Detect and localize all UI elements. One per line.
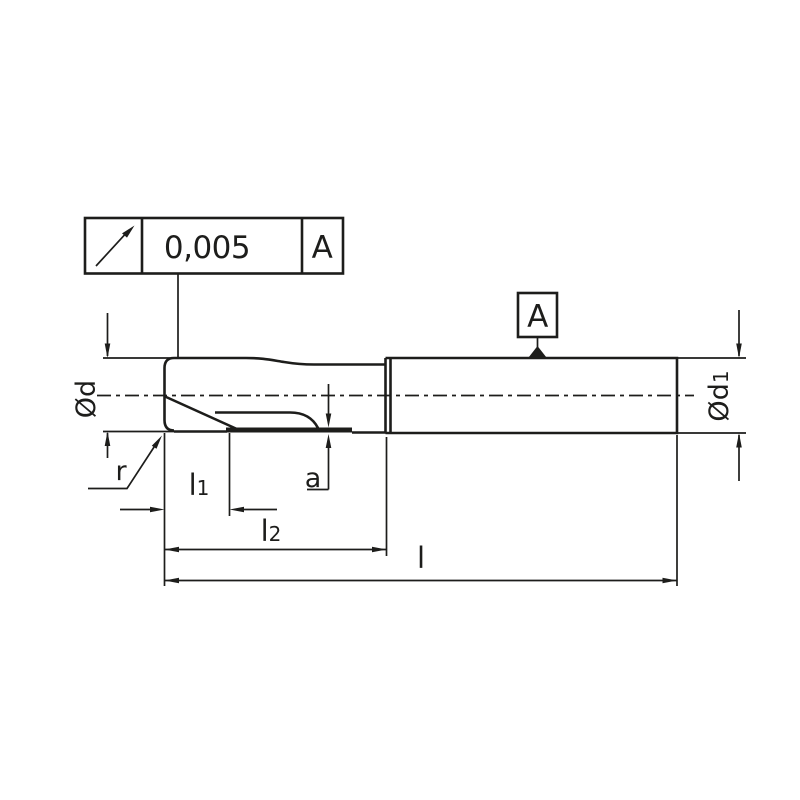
label-radius: r <box>115 456 127 487</box>
arrowhead-left <box>230 507 245 513</box>
label-l2: l2 <box>261 514 282 548</box>
label-l: l <box>417 541 425 575</box>
arrowhead-up <box>105 432 111 447</box>
arrowhead-down <box>736 344 742 359</box>
arrowhead-right <box>150 507 165 513</box>
datum-flag: A <box>518 293 557 358</box>
arrowhead-down <box>326 414 332 428</box>
dim-l1: l1 <box>120 433 277 586</box>
tolerance-value: 0,005 <box>164 230 250 266</box>
arrowhead-up <box>326 434 332 448</box>
arrowhead-down <box>105 344 111 359</box>
arrowhead-left <box>165 578 180 584</box>
datum-label: A <box>527 299 548 335</box>
label-diameter-shank: Ød1 <box>704 370 735 421</box>
tolerance-datum-ref: A <box>312 230 333 266</box>
dim-radius-leader: r <box>88 436 162 489</box>
arrowhead-right <box>663 578 678 584</box>
tolerance-frame: 0,005 A <box>85 218 343 357</box>
dim-a: a <box>305 384 332 494</box>
technical-drawing: 0,005 A A Ød Ød1 r <box>0 0 800 800</box>
cutter-top-edge <box>174 358 386 365</box>
datum-triangle-icon <box>529 346 547 358</box>
cutter-left-face <box>165 358 175 431</box>
arrowhead-right <box>372 547 387 553</box>
arrowhead-up <box>736 433 742 448</box>
label-l1: l1 <box>189 468 210 502</box>
label-diameter-cut: Ød <box>71 380 102 418</box>
flute-lines <box>165 397 318 430</box>
runout-arrow-icon <box>96 226 135 267</box>
arrowhead-left <box>165 547 180 553</box>
dim-diameter-cut: Ød <box>71 313 174 458</box>
label-a: a <box>305 463 322 494</box>
